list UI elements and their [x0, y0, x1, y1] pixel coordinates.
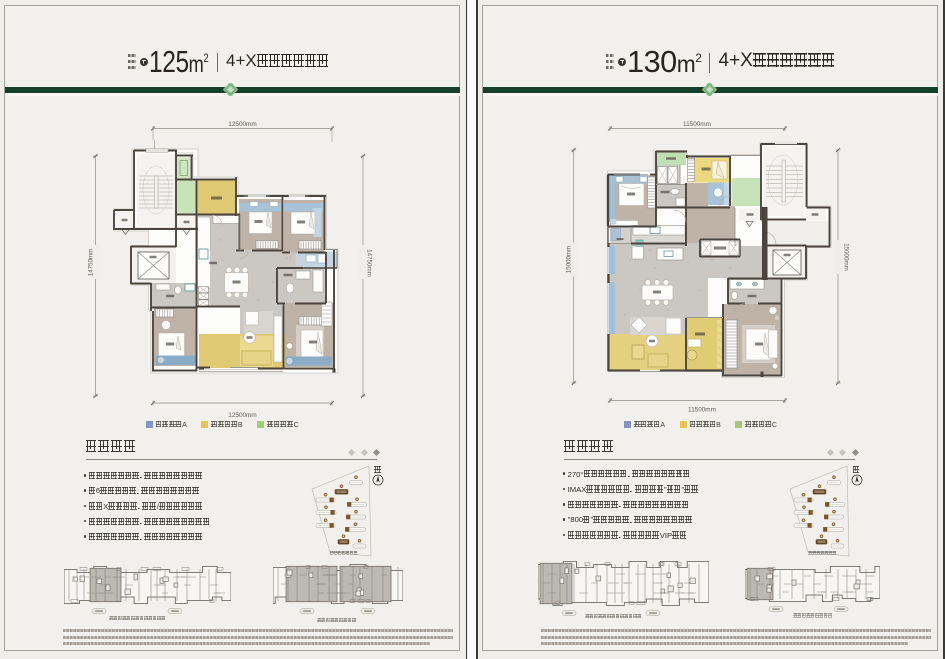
svg-text:12500mm: 12500mm — [228, 412, 256, 419]
svg-text:14750mm: 14750mm — [366, 249, 373, 277]
svg-text:15000mm: 15000mm — [566, 246, 573, 274]
svg-text:14750mm: 14750mm — [88, 249, 95, 277]
svg-text:11500mm: 11500mm — [683, 121, 711, 128]
svg-text:12500mm: 12500mm — [228, 121, 256, 128]
svg-text:15000mm: 15000mm — [843, 243, 850, 271]
svg-text:11500mm: 11500mm — [688, 407, 716, 414]
